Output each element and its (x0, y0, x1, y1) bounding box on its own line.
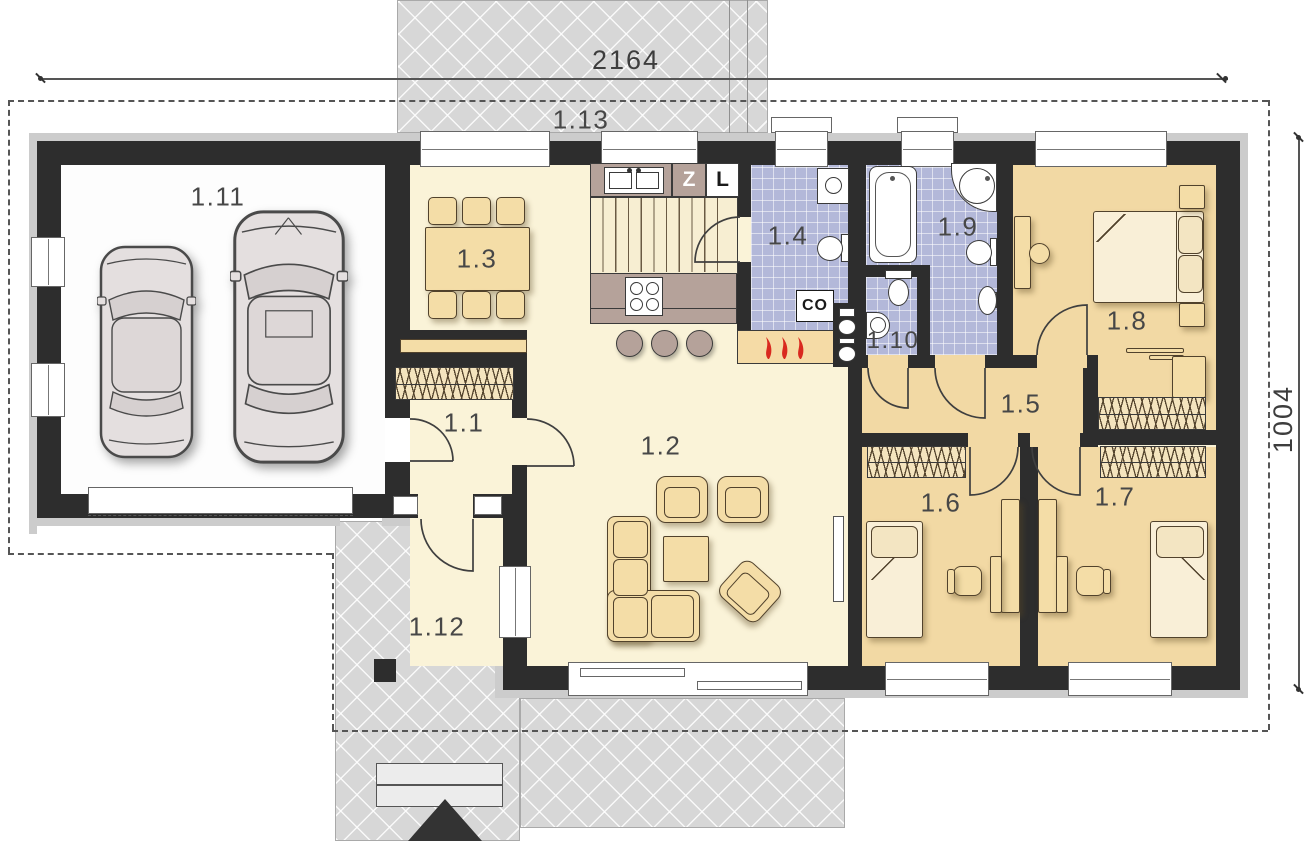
desk-chair-back (1103, 569, 1111, 594)
window-bathroom2 (901, 131, 954, 167)
desk-chair (953, 566, 982, 596)
door-opening (968, 433, 1018, 447)
room-label-corridor: 1.5 (1001, 389, 1042, 420)
chimney-flue (838, 319, 856, 335)
door-opening (1030, 433, 1080, 447)
tub-drain (890, 176, 895, 181)
toilet-bowl (888, 279, 909, 306)
basin-drain (985, 176, 990, 181)
armchair (717, 476, 769, 523)
desk-return (990, 556, 1002, 613)
garage-door (88, 487, 353, 514)
sliding-panel (580, 668, 685, 677)
label-l: L (716, 168, 729, 192)
desk-chair (1076, 566, 1105, 596)
boundary-line (332, 553, 334, 730)
exterior-trim (29, 518, 340, 526)
sink-basin (636, 172, 659, 189)
entrance-arrow-icon (408, 799, 482, 841)
window-garage-1 (31, 237, 65, 287)
desk-chair-back (947, 569, 955, 594)
room-label-dining: 1.3 (457, 244, 498, 275)
sideboard (400, 339, 527, 353)
wardrobe-bedroom3 (1098, 397, 1206, 430)
window-living-west (499, 566, 531, 638)
wall-hall-living (512, 465, 527, 518)
boundary-line (8, 553, 332, 555)
bar-stool (651, 330, 678, 357)
room-label-bedroom3: 1.8 (1107, 306, 1148, 337)
window-bedroom3 (1035, 131, 1167, 167)
chimney-vent (839, 338, 855, 344)
wardrobe-hall (395, 367, 514, 400)
dining-chair (462, 197, 491, 225)
sink-tap (636, 168, 641, 173)
window-garage-2 (31, 363, 65, 417)
kitchen-sink (604, 167, 664, 194)
sofa-cushion (651, 595, 694, 638)
armchair (656, 476, 708, 523)
wall-garage-east (385, 462, 410, 494)
floor-plan: 2164 1004 (0, 0, 1312, 841)
boiler: CO (796, 290, 834, 322)
door-opening (868, 355, 908, 368)
terrace-entry-hatch-south (520, 698, 845, 828)
flame-icon (758, 333, 816, 361)
dining-chair (428, 197, 457, 225)
counter-edge (591, 308, 736, 309)
wall-kitchen-bath (737, 165, 751, 217)
door-opening (935, 355, 985, 368)
car-large (230, 205, 348, 469)
porch-post (374, 659, 396, 682)
dresser (1172, 356, 1206, 398)
blanket-fold (1096, 214, 1126, 242)
dim-dot (1223, 76, 1228, 81)
blanket-fold (1179, 558, 1207, 580)
wall-kitchen-bath (737, 262, 751, 330)
wall-divider-bedrooms (1020, 447, 1038, 666)
bed-line (1176, 212, 1177, 302)
pantry-shelf-lines (591, 198, 721, 272)
kitchen-sink-cabinet: Z (672, 163, 706, 197)
sink-basin (609, 172, 632, 189)
sofa-cushion (613, 559, 648, 596)
sofa-cushion (613, 521, 648, 558)
wardrobe-bedroom1 (867, 446, 966, 478)
boundary-line (332, 730, 1268, 732)
room-label-terrace-garden: 1.13 (553, 105, 610, 136)
room-label-bathroom2: 1.9 (938, 212, 979, 243)
wall-bedroom3-south (1083, 430, 1216, 445)
basin-bowl (959, 168, 995, 204)
dimension-right-value: 1004 (1268, 385, 1299, 453)
blanket-fold (869, 558, 897, 580)
wall-west (37, 165, 61, 518)
boundary-line (8, 100, 10, 553)
wardrobe-bedroom2 (1100, 446, 1206, 478)
fireplace (737, 330, 836, 364)
fridge: L (706, 163, 739, 197)
single-bed (866, 521, 923, 638)
window-kitchen (601, 131, 698, 167)
room-label-bedroom1: 1.6 (921, 488, 962, 519)
washbasin (817, 236, 843, 261)
entry-step (376, 763, 503, 785)
garage-door-line (88, 515, 353, 516)
label-co: CO (802, 297, 828, 315)
floor-corridor (862, 368, 1083, 433)
bar-stool (616, 330, 643, 357)
tv-unit (833, 516, 844, 602)
sliding-panel (697, 681, 802, 690)
window-bathroom (775, 131, 828, 167)
room-label-bathroom: 1.4 (768, 221, 809, 252)
wall-east (1216, 165, 1240, 690)
sofa-cushion (613, 597, 648, 638)
room-label-wc: 1.10 (867, 327, 920, 355)
door-opening (1037, 355, 1087, 368)
dimension-line-top (40, 78, 1228, 80)
armchair-seat (664, 487, 700, 518)
entrance-sidelight (393, 496, 418, 515)
exterior-trim (1240, 141, 1248, 698)
pillow (871, 526, 918, 558)
nightstand (1179, 185, 1205, 209)
dim-dot (1296, 135, 1301, 140)
room-label-terrace-entry: 1.12 (409, 612, 466, 643)
dim-dot (38, 76, 43, 81)
window-dining (420, 131, 550, 167)
dim-dot (1296, 687, 1301, 692)
wall-living-west (503, 518, 527, 568)
window-bedroom2 (1068, 662, 1172, 696)
boundary-line (8, 100, 1268, 102)
room-label-hall: 1.1 (444, 408, 485, 439)
pillow (1178, 216, 1203, 254)
shelf (1126, 348, 1184, 353)
kitchen-counter-hob (590, 273, 737, 324)
wall-living-east (848, 368, 862, 690)
tub-basin (875, 172, 911, 257)
bathtub (869, 166, 917, 263)
entrance-sidelight (474, 496, 502, 515)
sink-tap (627, 168, 632, 173)
desk (1001, 499, 1020, 613)
chimney-shaft-line (729, 0, 730, 133)
armchair-seat (725, 487, 761, 518)
room-label-living: 1.2 (641, 431, 682, 462)
dining-chair (496, 197, 525, 225)
dining-chair (462, 291, 491, 319)
dining-chair (496, 291, 525, 319)
pillow (1156, 526, 1204, 558)
toilet-bowl (966, 240, 992, 265)
room-label-bedroom2: 1.7 (1095, 482, 1136, 513)
pillow (1178, 255, 1203, 293)
desk (1038, 499, 1057, 613)
pantry (590, 197, 738, 274)
bidet (978, 286, 997, 315)
nightstand (1179, 303, 1205, 327)
window-bedroom1 (885, 662, 989, 696)
washer-door (825, 177, 842, 194)
stool (1029, 243, 1050, 264)
chimney-vent (839, 308, 855, 317)
wall-hall-living (512, 353, 527, 418)
dimension-top-value: 2164 (592, 45, 660, 76)
toilet-tank (885, 270, 912, 279)
hob (625, 277, 663, 316)
washing-machine (817, 168, 849, 204)
wall-bath2-east (997, 165, 1013, 355)
room-label-garage: 1.11 (191, 182, 246, 213)
chimney-shaft-line (747, 0, 748, 133)
car-small (97, 242, 196, 462)
desk-return (1056, 556, 1068, 613)
wall-niche (400, 330, 527, 339)
label-z: Z (683, 168, 696, 192)
wall-niche (400, 353, 527, 367)
dining-chair (428, 291, 457, 319)
single-bed (1150, 521, 1208, 638)
bar-stool (686, 330, 713, 357)
chimney-flue (838, 346, 856, 362)
exterior-trim (29, 141, 37, 534)
coffee-table (663, 536, 709, 582)
